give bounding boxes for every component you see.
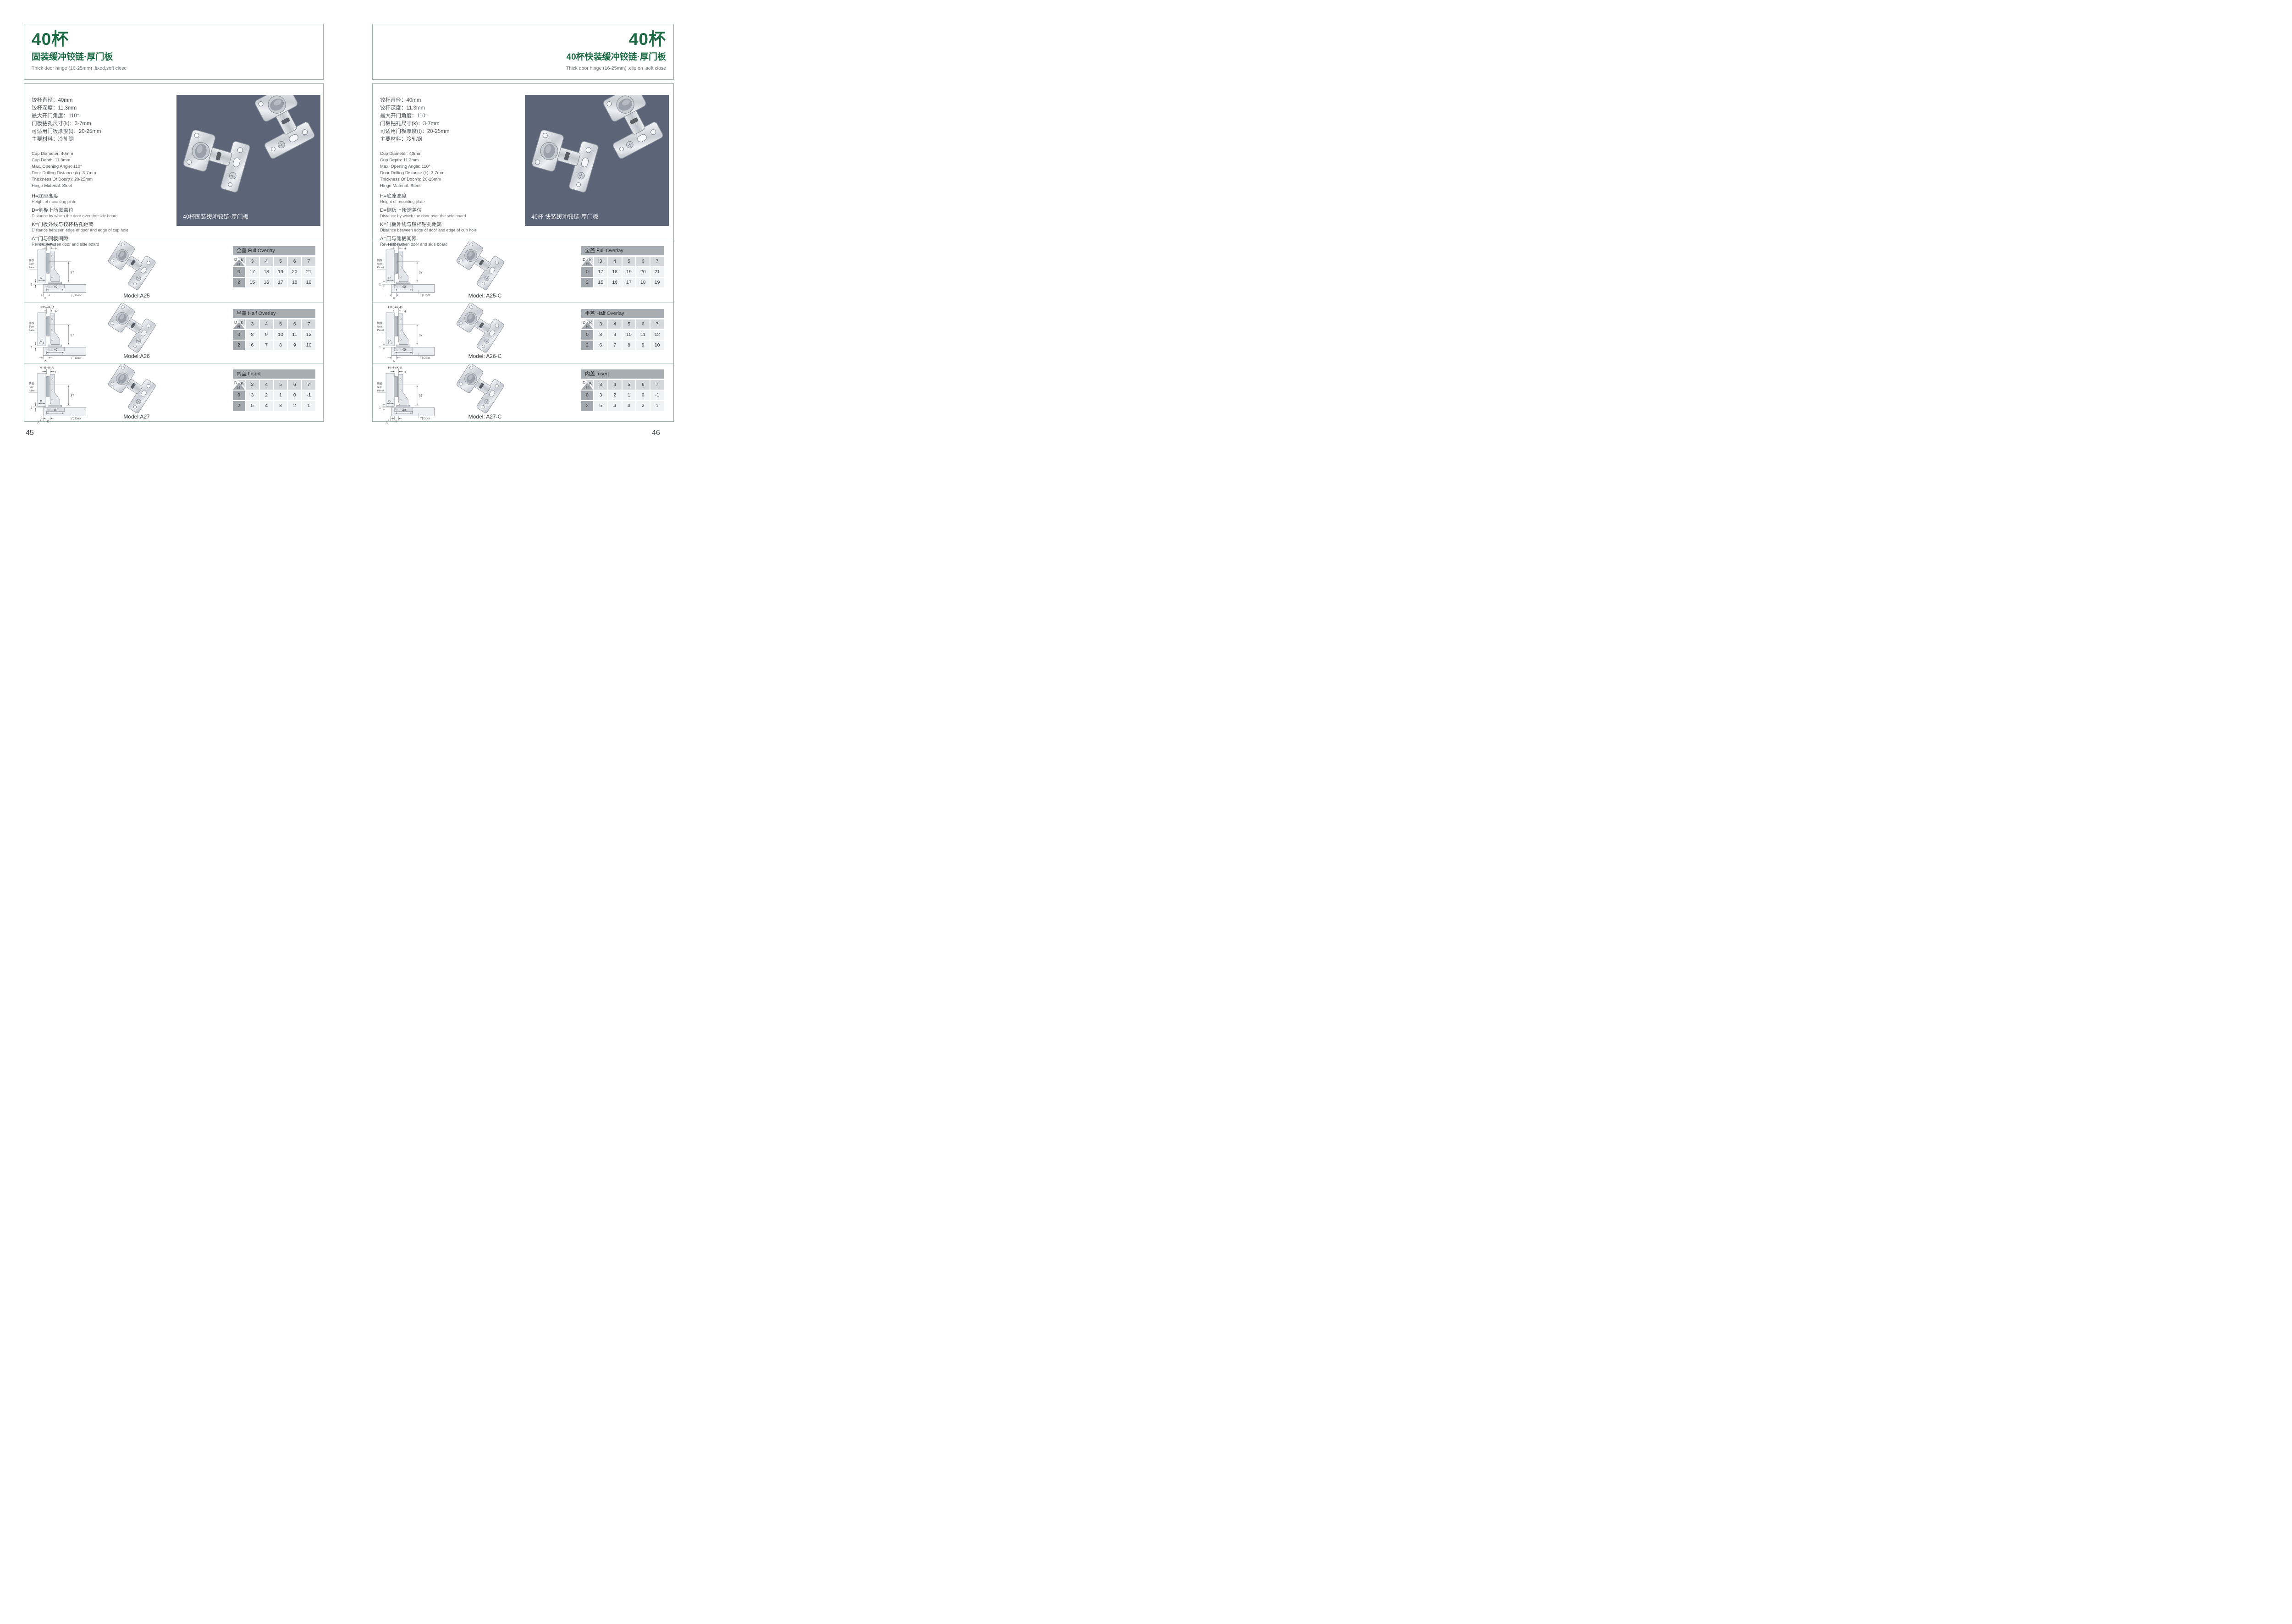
table-corner-cell: DKH xyxy=(581,319,593,329)
svg-text:H=5+K-D: H=5+K-D xyxy=(40,305,55,309)
svg-text:门 Door: 门 Door xyxy=(72,416,82,420)
corner-label-h: H xyxy=(237,262,240,266)
corner-label-h: H xyxy=(237,325,240,329)
svg-text:H=5+K-D: H=5+K-D xyxy=(388,305,403,309)
data-cell: 19 xyxy=(274,267,287,277)
data-cell: 5 xyxy=(594,401,607,411)
specs-english: Cup Diameter: 40mmCup Depth: 11.3mmMax. … xyxy=(380,151,444,189)
svg-text:40: 40 xyxy=(54,408,57,412)
product-photo: 40杯 快装缓冲铰链·厚门板 xyxy=(525,95,669,226)
specs-chinese: 铰杯直径：40mm铰杯深度：11.3mm最大开门角度：110°门板钻孔尺寸(k)… xyxy=(32,97,101,143)
k-header-cell: 3 xyxy=(246,380,259,390)
data-cell: 10 xyxy=(274,330,287,340)
product-row: H=6+K-A侧板SidePanelH37401DKA门 DoorModel: … xyxy=(373,363,673,423)
svg-text:K: K xyxy=(395,420,397,424)
diagram-wrap: H=6+K-A侧板SidePanelH37401DKA门 Door xyxy=(376,365,446,426)
k-header-cell: 4 xyxy=(260,380,273,390)
svg-text:H: H xyxy=(55,247,57,250)
table-title: 内盖 Insert xyxy=(581,369,664,379)
overlay-table: 内盖 InsertDKH3456703210-1254321 xyxy=(581,369,664,411)
spec-line-en: Door Drilling Distance (k): 3-7mm xyxy=(380,170,444,176)
data-cell: 7 xyxy=(608,341,622,350)
hinge-wrap xyxy=(456,303,509,359)
spec-line-cn: 可适用门板厚度(t)：20-25mm xyxy=(380,128,449,136)
data-cell: 1 xyxy=(274,391,287,400)
data-cell: 2 xyxy=(636,401,650,411)
definition-desc: Distance between edge of door and edge o… xyxy=(32,228,169,233)
svg-text:D: D xyxy=(40,339,42,342)
overlay-table: 半盖 Half OverlayDKH345670891011122678910 xyxy=(581,309,664,350)
spec-line-en: Thickness Of Door(t): 20-25mm xyxy=(32,176,96,183)
definition-desc: Height of mounting plate xyxy=(380,199,518,204)
spec-line-en: Max. Opening Angle: 110° xyxy=(380,164,444,170)
data-cell: 10 xyxy=(623,330,636,340)
svg-text:1: 1 xyxy=(379,346,381,349)
corner-label-h: H xyxy=(586,325,589,329)
corner-label-h: H xyxy=(237,385,240,390)
spec-line-en: Cup Depth: 11.3mm xyxy=(380,157,444,164)
corner-label-d: D xyxy=(234,320,237,325)
k-header-cell: 3 xyxy=(594,257,607,266)
definition-term: D=侧板上所需盖位 xyxy=(380,208,518,214)
spec-line-cn: 铰杯直径：40mm xyxy=(380,97,449,105)
specs-english: Cup Diameter: 40mmCup Depth: 11.3mmMax. … xyxy=(32,151,96,189)
installation-diagram: H=5+K-D侧板SidePanelH37401DK门 Door xyxy=(376,304,446,363)
k-header-cell: 7 xyxy=(302,257,315,266)
data-cell: 19 xyxy=(302,278,315,287)
svg-text:门 Door: 门 Door xyxy=(72,293,82,297)
data-cell: 11 xyxy=(636,330,650,340)
svg-text:侧板: 侧板 xyxy=(377,321,383,325)
svg-text:40: 40 xyxy=(402,285,406,289)
data-cell: 2 xyxy=(288,401,301,411)
table-title: 半盖 Half Overlay xyxy=(581,309,664,318)
diagram-wrap: H=14+K-D侧板SidePanelH37401DK门 Door xyxy=(376,242,446,303)
hinge-product-image xyxy=(456,364,509,417)
product-rows: H=14+K-D侧板SidePanelH37401DK门 DoorModel: … xyxy=(373,240,673,421)
product-rows: H=14+K-D侧板SidePanelH37401DK门 DoorModel:A… xyxy=(24,240,323,421)
definition-desc: Height of mounting plate xyxy=(32,199,169,204)
page-number-right: 46 xyxy=(652,429,660,437)
hinge-product-image xyxy=(456,303,509,357)
model-label: Model:A27 xyxy=(88,413,185,420)
svg-text:门 Door: 门 Door xyxy=(72,356,82,360)
svg-text:H=6+K-A: H=6+K-A xyxy=(40,365,54,369)
table-corner-cell: DKH xyxy=(581,380,593,390)
k-header-cell: 5 xyxy=(623,257,636,266)
data-cell: 17 xyxy=(274,278,287,287)
corner-label-k: K xyxy=(241,321,243,325)
hinge-wrap xyxy=(108,364,161,419)
data-cell: 6 xyxy=(246,341,259,350)
product-row: H=6+K-A侧板SidePanelH37401DKA门 DoorModel:A… xyxy=(24,363,323,423)
corner-label-d: D xyxy=(583,320,585,325)
svg-text:D: D xyxy=(40,276,42,280)
k-header-cell: 4 xyxy=(260,319,273,329)
h-row-cell: 2 xyxy=(581,401,593,411)
hinge-photo-art xyxy=(176,95,320,226)
svg-text:H=14+K-D: H=14+K-D xyxy=(40,242,56,246)
table-corner-cell: DKH xyxy=(233,380,245,390)
svg-text:Side: Side xyxy=(377,263,382,265)
data-cell: 18 xyxy=(260,267,273,277)
data-cell: 9 xyxy=(288,341,301,350)
data-cell: 20 xyxy=(288,267,301,277)
data-cell: 3 xyxy=(594,391,607,400)
corner-label-k: K xyxy=(589,381,592,385)
page-46: 40杯 40杯快装缓冲铰链·厚门板 Thick door hinge (16-2… xyxy=(372,24,674,422)
svg-text:H: H xyxy=(403,370,406,374)
spec-line-cn: 铰杯深度：11.3mm xyxy=(380,105,449,112)
data-cell: 1 xyxy=(302,401,315,411)
product-row: H=5+K-D侧板SidePanelH37401DK门 DoorModel: A… xyxy=(373,303,673,363)
svg-text:Panel: Panel xyxy=(29,266,35,269)
svg-text:H: H xyxy=(55,310,57,313)
data-cell: 7 xyxy=(260,341,273,350)
svg-text:K: K xyxy=(44,297,47,300)
table-grid: DKH345670171819202121516171819 xyxy=(581,257,664,287)
diagram-wrap: H=6+K-A侧板SidePanelH37401DKA门 Door xyxy=(28,365,98,426)
svg-text:Panel: Panel xyxy=(377,266,384,269)
data-cell: 17 xyxy=(623,278,636,287)
model-label: Model: A25-C xyxy=(437,292,533,299)
svg-text:H=6+K-A: H=6+K-A xyxy=(388,365,402,369)
data-cell: 17 xyxy=(594,267,607,277)
table-title: 内盖 Insert xyxy=(233,369,315,379)
k-header-cell: 4 xyxy=(608,319,622,329)
svg-text:37: 37 xyxy=(71,333,74,337)
definition-desc: Distance between edge of door and edge o… xyxy=(380,228,518,233)
data-cell: 0 xyxy=(288,391,301,400)
definition-term: K=门板外线与铰杯钻孔距离 xyxy=(32,222,169,228)
svg-text:Panel: Panel xyxy=(377,390,384,392)
data-cell: 20 xyxy=(636,267,650,277)
h-row-cell: 0 xyxy=(581,267,593,277)
diagram-wrap: H=5+K-D侧板SidePanelH37401DK门 Door xyxy=(376,304,446,365)
k-header-cell: 6 xyxy=(636,257,650,266)
model-label: Model:A26 xyxy=(88,353,185,359)
corner-label-h: H xyxy=(586,385,589,390)
svg-text:1: 1 xyxy=(379,283,381,286)
page-subtitle-en: Thick door hinge (16-25mm) ,clip on ,sof… xyxy=(380,66,666,71)
svg-text:D: D xyxy=(388,400,391,403)
spec-line-en: Door Drilling Distance (k): 3-7mm xyxy=(32,170,96,176)
definition-term: H=底座高度 xyxy=(380,193,518,199)
spec-line-en: Hinge Material: Steel xyxy=(32,183,96,189)
page-45: 40杯 固装缓冲铰链·厚门板 Thick door hinge (16-25mm… xyxy=(24,24,324,422)
overlay-table: 半盖 Half OverlayDKH345670891011122678910 xyxy=(233,309,315,350)
k-header-cell: 5 xyxy=(623,380,636,390)
spec-line-cn: 门板钻孔尺寸(k)：3-7mm xyxy=(380,120,449,128)
spec-line-en: Hinge Material: Steel xyxy=(380,183,444,189)
data-cell: 8 xyxy=(623,341,636,350)
data-cell: 21 xyxy=(302,267,315,277)
corner-label-k: K xyxy=(241,258,243,262)
table-grid: DKH3456703210-1254321 xyxy=(581,380,664,411)
installation-diagram: H=14+K-D侧板SidePanelH37401DK门 Door xyxy=(28,242,98,300)
data-cell: 3 xyxy=(246,391,259,400)
data-cell: 8 xyxy=(274,341,287,350)
spec-line-cn: 铰杯深度：11.3mm xyxy=(32,105,101,112)
specs-chinese: 铰杯直径：40mm铰杯深度：11.3mm最大开门角度：110°门板钻孔尺寸(k)… xyxy=(380,97,449,143)
data-cell: 8 xyxy=(246,330,259,340)
k-header-cell: 6 xyxy=(636,380,650,390)
spec-line-cn: 最大开门角度：110° xyxy=(32,112,101,120)
table-grid: DKH345670891011122678910 xyxy=(581,319,664,350)
hinge-product-image xyxy=(108,303,161,357)
table-title: 半盖 Half Overlay xyxy=(233,309,315,318)
h-row-cell: 2 xyxy=(233,341,245,350)
k-header-cell: 6 xyxy=(288,380,301,390)
hinge-product-image xyxy=(456,241,509,294)
table-corner-cell: DKH xyxy=(581,257,593,266)
h-row-cell: 2 xyxy=(233,278,245,287)
corner-label-d: D xyxy=(583,381,585,385)
page-subtitle-en: Thick door hinge (16-25mm) ,fixed,soft c… xyxy=(32,66,316,71)
svg-text:1: 1 xyxy=(31,346,33,349)
definition-desc: Distance by which the door over the side… xyxy=(380,214,518,219)
h-row-cell: 0 xyxy=(233,330,245,340)
k-header-cell: 4 xyxy=(260,257,273,266)
data-cell: 10 xyxy=(302,341,315,350)
svg-text:Panel: Panel xyxy=(29,329,35,332)
data-cell: 15 xyxy=(594,278,607,287)
svg-text:40: 40 xyxy=(54,348,57,352)
spec-line-en: Cup Diameter: 40mm xyxy=(380,151,444,157)
k-header-cell: 7 xyxy=(650,380,664,390)
spec-line-cn: 主要材料：冷轧钢 xyxy=(32,136,101,143)
h-row-cell: 0 xyxy=(233,391,245,400)
data-cell: 16 xyxy=(608,278,622,287)
k-header-cell: 4 xyxy=(608,257,622,266)
data-cell: 11 xyxy=(288,330,301,340)
data-cell: 18 xyxy=(608,267,622,277)
svg-text:D: D xyxy=(388,339,391,342)
svg-text:37: 37 xyxy=(71,270,74,274)
svg-text:侧板: 侧板 xyxy=(29,382,34,385)
data-cell: 5 xyxy=(246,401,259,411)
svg-text:D: D xyxy=(388,276,391,280)
svg-text:Panel: Panel xyxy=(29,390,35,392)
data-cell: 0 xyxy=(636,391,650,400)
spec-line-en: Max. Opening Angle: 110° xyxy=(32,164,96,170)
spec-line-cn: 主要材料：冷轧钢 xyxy=(380,136,449,143)
data-cell: 2 xyxy=(608,391,622,400)
svg-text:侧板: 侧板 xyxy=(377,382,383,385)
svg-text:1: 1 xyxy=(31,407,33,410)
svg-text:A: A xyxy=(386,421,388,424)
photo-caption: 40杯固装缓冲铰链·厚门板 xyxy=(183,212,248,220)
data-cell: 9 xyxy=(608,330,622,340)
data-cell: 4 xyxy=(608,401,622,411)
hinge-photo-art xyxy=(525,95,669,226)
data-cell: 3 xyxy=(623,401,636,411)
svg-text:40: 40 xyxy=(54,285,57,289)
spec-line-en: Cup Diameter: 40mm xyxy=(32,151,96,157)
installation-diagram: H=5+K-D侧板SidePanelH37401DK门 Door xyxy=(28,304,98,363)
hinge-wrap xyxy=(456,241,509,296)
table-title: 全盖 Full Overlay xyxy=(581,246,664,255)
svg-text:37: 37 xyxy=(419,333,423,337)
svg-text:K: K xyxy=(393,297,395,300)
data-cell: 19 xyxy=(650,278,664,287)
k-header-cell: 3 xyxy=(246,257,259,266)
data-cell: -1 xyxy=(302,391,315,400)
installation-diagram: H=6+K-A侧板SidePanelH37401DKA门 Door xyxy=(376,365,446,424)
svg-text:Side: Side xyxy=(29,325,34,328)
data-cell: 2 xyxy=(260,391,273,400)
svg-text:门 Door: 门 Door xyxy=(420,356,430,360)
svg-text:Side: Side xyxy=(377,386,382,389)
svg-text:40: 40 xyxy=(402,408,406,412)
photo-caption: 40杯 快装缓冲铰链·厚门板 xyxy=(531,212,599,220)
table-title: 全盖 Full Overlay xyxy=(233,246,315,255)
data-cell: 18 xyxy=(288,278,301,287)
svg-text:H: H xyxy=(403,310,406,313)
corner-label-k: K xyxy=(589,258,592,262)
k-header-cell: 6 xyxy=(636,319,650,329)
svg-text:1: 1 xyxy=(31,283,33,286)
product-row: H=14+K-D侧板SidePanelH37401DK门 DoorModel:A… xyxy=(24,240,323,302)
product-row: H=5+K-D侧板SidePanelH37401DK门 DoorModel:A2… xyxy=(24,303,323,363)
svg-text:H=14+K-D: H=14+K-D xyxy=(388,242,405,246)
installation-diagram: H=6+K-A侧板SidePanelH37401DKA门 Door xyxy=(28,365,98,424)
definition-desc: Distance by which the door over the side… xyxy=(32,214,169,219)
svg-text:40: 40 xyxy=(402,348,406,352)
product-row: H=14+K-D侧板SidePanelH37401DK门 DoorModel: … xyxy=(373,240,673,302)
k-header-cell: 6 xyxy=(288,257,301,266)
data-cell: -1 xyxy=(650,391,664,400)
product-photo: 40杯固装缓冲铰链·厚门板 xyxy=(176,95,320,226)
data-cell: 6 xyxy=(594,341,607,350)
diagram-wrap: H=14+K-D侧板SidePanelH37401DK门 Door xyxy=(28,242,98,303)
svg-text:37: 37 xyxy=(71,394,74,397)
model-label: Model: A26-C xyxy=(437,353,533,359)
table-corner-cell: DKH xyxy=(233,319,245,329)
hinge-wrap xyxy=(456,364,509,419)
model-label: Model:A25 xyxy=(88,292,185,299)
data-cell: 1 xyxy=(623,391,636,400)
data-cell: 12 xyxy=(650,330,664,340)
page-header: 40杯 40杯快装缓冲铰链·厚门板 Thick door hinge (16-2… xyxy=(372,24,674,80)
k-header-cell: 6 xyxy=(288,319,301,329)
svg-text:K: K xyxy=(47,420,49,424)
k-header-cell: 3 xyxy=(246,319,259,329)
h-row-cell: 0 xyxy=(233,267,245,277)
overlay-table: 全盖 Full OverlayDKH3456701718192021215161… xyxy=(581,246,664,287)
spec-line-en: Thickness Of Door(t): 20-25mm xyxy=(380,176,444,183)
data-cell: 18 xyxy=(636,278,650,287)
corner-label-d: D xyxy=(234,258,237,262)
corner-label-k: K xyxy=(589,321,592,325)
corner-label-d: D xyxy=(583,258,585,262)
data-cell: 17 xyxy=(246,267,259,277)
table-grid: DKH345670891011122678910 xyxy=(233,319,315,350)
page-title: 40杯 xyxy=(380,31,666,48)
svg-text:门 Door: 门 Door xyxy=(420,416,430,420)
h-row-cell: 0 xyxy=(581,330,593,340)
svg-text:H: H xyxy=(55,370,57,374)
page-subtitle: 固装缓冲铰链·厚门板 xyxy=(32,50,316,62)
svg-text:Side: Side xyxy=(29,386,34,389)
data-cell: 9 xyxy=(260,330,273,340)
k-header-cell: 7 xyxy=(302,380,315,390)
installation-diagram: H=14+K-D侧板SidePanelH37401DK门 Door xyxy=(376,242,446,300)
h-row-cell: 0 xyxy=(581,391,593,400)
overlay-table: 内盖 InsertDKH3456703210-1254321 xyxy=(233,369,315,411)
page-subtitle: 40杯快装缓冲铰链·厚门板 xyxy=(380,50,666,62)
model-label: Model: A27-C xyxy=(437,413,533,420)
svg-text:门 Door: 门 Door xyxy=(420,293,430,297)
k-header-cell: 3 xyxy=(594,319,607,329)
k-header-cell: 7 xyxy=(650,257,664,266)
page-body: 铰杯直径：40mm铰杯深度：11.3mm最大开门角度：110°门板钻孔尺寸(k)… xyxy=(24,83,324,422)
catalog-spread: 40杯 固装缓冲铰链·厚门板 Thick door hinge (16-25mm… xyxy=(0,0,697,455)
hinge-product-image xyxy=(108,364,161,417)
svg-text:37: 37 xyxy=(419,270,423,274)
corner-label-d: D xyxy=(234,381,237,385)
svg-text:侧板: 侧板 xyxy=(377,259,383,262)
svg-text:37: 37 xyxy=(419,394,423,397)
spec-line-cn: 可适用门板厚度(t)：20-25mm xyxy=(32,128,101,136)
table-grid: DKH345670171819202121516171819 xyxy=(233,257,315,287)
data-cell: 16 xyxy=(260,278,273,287)
definition-term: D=侧板上所需盖位 xyxy=(32,208,169,214)
svg-text:Side: Side xyxy=(29,263,34,265)
k-header-cell: 3 xyxy=(594,380,607,390)
svg-text:Side: Side xyxy=(377,325,382,328)
k-header-cell: 4 xyxy=(608,380,622,390)
page-body: 铰杯直径：40mm铰杯深度：11.3mm最大开门角度：110°门板钻孔尺寸(k)… xyxy=(372,83,674,422)
spec-line-cn: 门板钻孔尺寸(k)：3-7mm xyxy=(32,120,101,128)
data-cell: 12 xyxy=(302,330,315,340)
diagram-wrap: H=5+K-D侧板SidePanelH37401DK门 Door xyxy=(28,304,98,365)
data-cell: 3 xyxy=(274,401,287,411)
data-cell: 9 xyxy=(636,341,650,350)
table-grid: DKH3456703210-1254321 xyxy=(233,380,315,411)
data-cell: 8 xyxy=(594,330,607,340)
table-corner-cell: DKH xyxy=(233,257,245,266)
dimension-definitions: H=底座高度Height of mounting plateD=侧板上所需盖位D… xyxy=(32,190,169,247)
overlay-table: 全盖 Full OverlayDKH3456701718192021215161… xyxy=(233,246,315,287)
k-header-cell: 5 xyxy=(623,319,636,329)
k-header-cell: 7 xyxy=(650,319,664,329)
hinge-wrap xyxy=(108,303,161,359)
data-cell: 1 xyxy=(650,401,664,411)
definition-term: H=底座高度 xyxy=(32,193,169,199)
svg-text:侧板: 侧板 xyxy=(29,321,34,325)
corner-label-h: H xyxy=(586,262,589,266)
data-cell: 15 xyxy=(246,278,259,287)
data-cell: 19 xyxy=(623,267,636,277)
svg-text:A: A xyxy=(37,421,39,424)
hinge-product-image xyxy=(108,241,161,294)
spec-line-cn: 最大开门角度：110° xyxy=(380,112,449,120)
k-header-cell: 5 xyxy=(274,257,287,266)
page-number-left: 45 xyxy=(26,429,34,437)
definition-term: K=门板外线与铰杯钻孔距离 xyxy=(380,222,518,228)
page-title: 40杯 xyxy=(32,31,316,48)
h-row-cell: 2 xyxy=(581,341,593,350)
svg-text:Panel: Panel xyxy=(377,329,384,332)
h-row-cell: 2 xyxy=(233,401,245,411)
spec-line-cn: 铰杯直径：40mm xyxy=(32,97,101,105)
k-header-cell: 5 xyxy=(274,319,287,329)
page-header: 40杯 固装缓冲铰链·厚门板 Thick door hinge (16-25mm… xyxy=(24,24,324,80)
hinge-wrap xyxy=(108,241,161,296)
data-cell: 4 xyxy=(260,401,273,411)
svg-text:1: 1 xyxy=(379,407,381,410)
